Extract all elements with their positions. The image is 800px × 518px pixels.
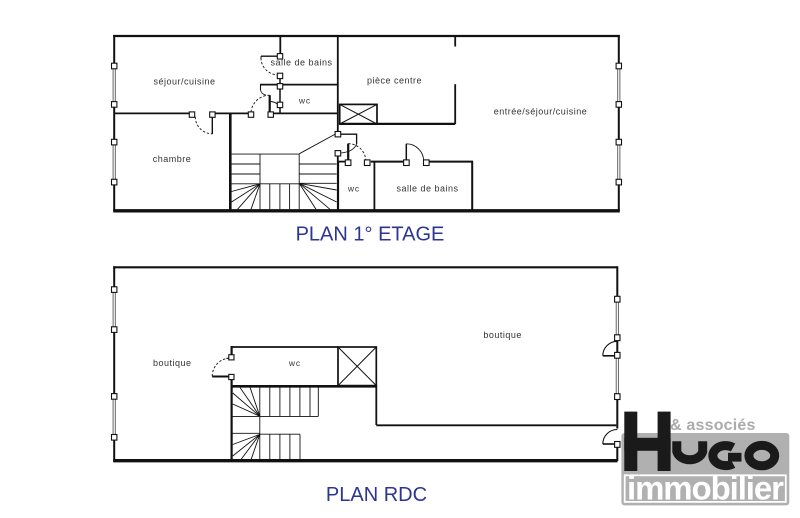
svg-text:wc: wc: [288, 358, 301, 368]
svg-text:entrée/séjour/cuisine: entrée/séjour/cuisine: [494, 107, 588, 117]
svg-text:wc: wc: [347, 184, 360, 194]
svg-text:séjour/cuisine: séjour/cuisine: [153, 77, 215, 87]
svg-text:salle de bains: salle de bains: [270, 58, 332, 68]
svg-text:& associés: & associés: [670, 417, 756, 434]
svg-text:immobilier: immobilier: [627, 470, 784, 507]
svg-text:salle de bains: salle de bains: [396, 184, 458, 194]
svg-text:pièce centre: pièce centre: [367, 76, 422, 86]
svg-text:boutique: boutique: [153, 358, 192, 368]
svg-text:chambre: chambre: [153, 154, 192, 164]
svg-text:PLAN RDC: PLAN RDC: [326, 484, 427, 506]
svg-text:wc: wc: [298, 96, 311, 106]
svg-text:boutique: boutique: [483, 330, 522, 340]
svg-text:PLAN 1° ETAGE: PLAN 1° ETAGE: [296, 224, 445, 246]
